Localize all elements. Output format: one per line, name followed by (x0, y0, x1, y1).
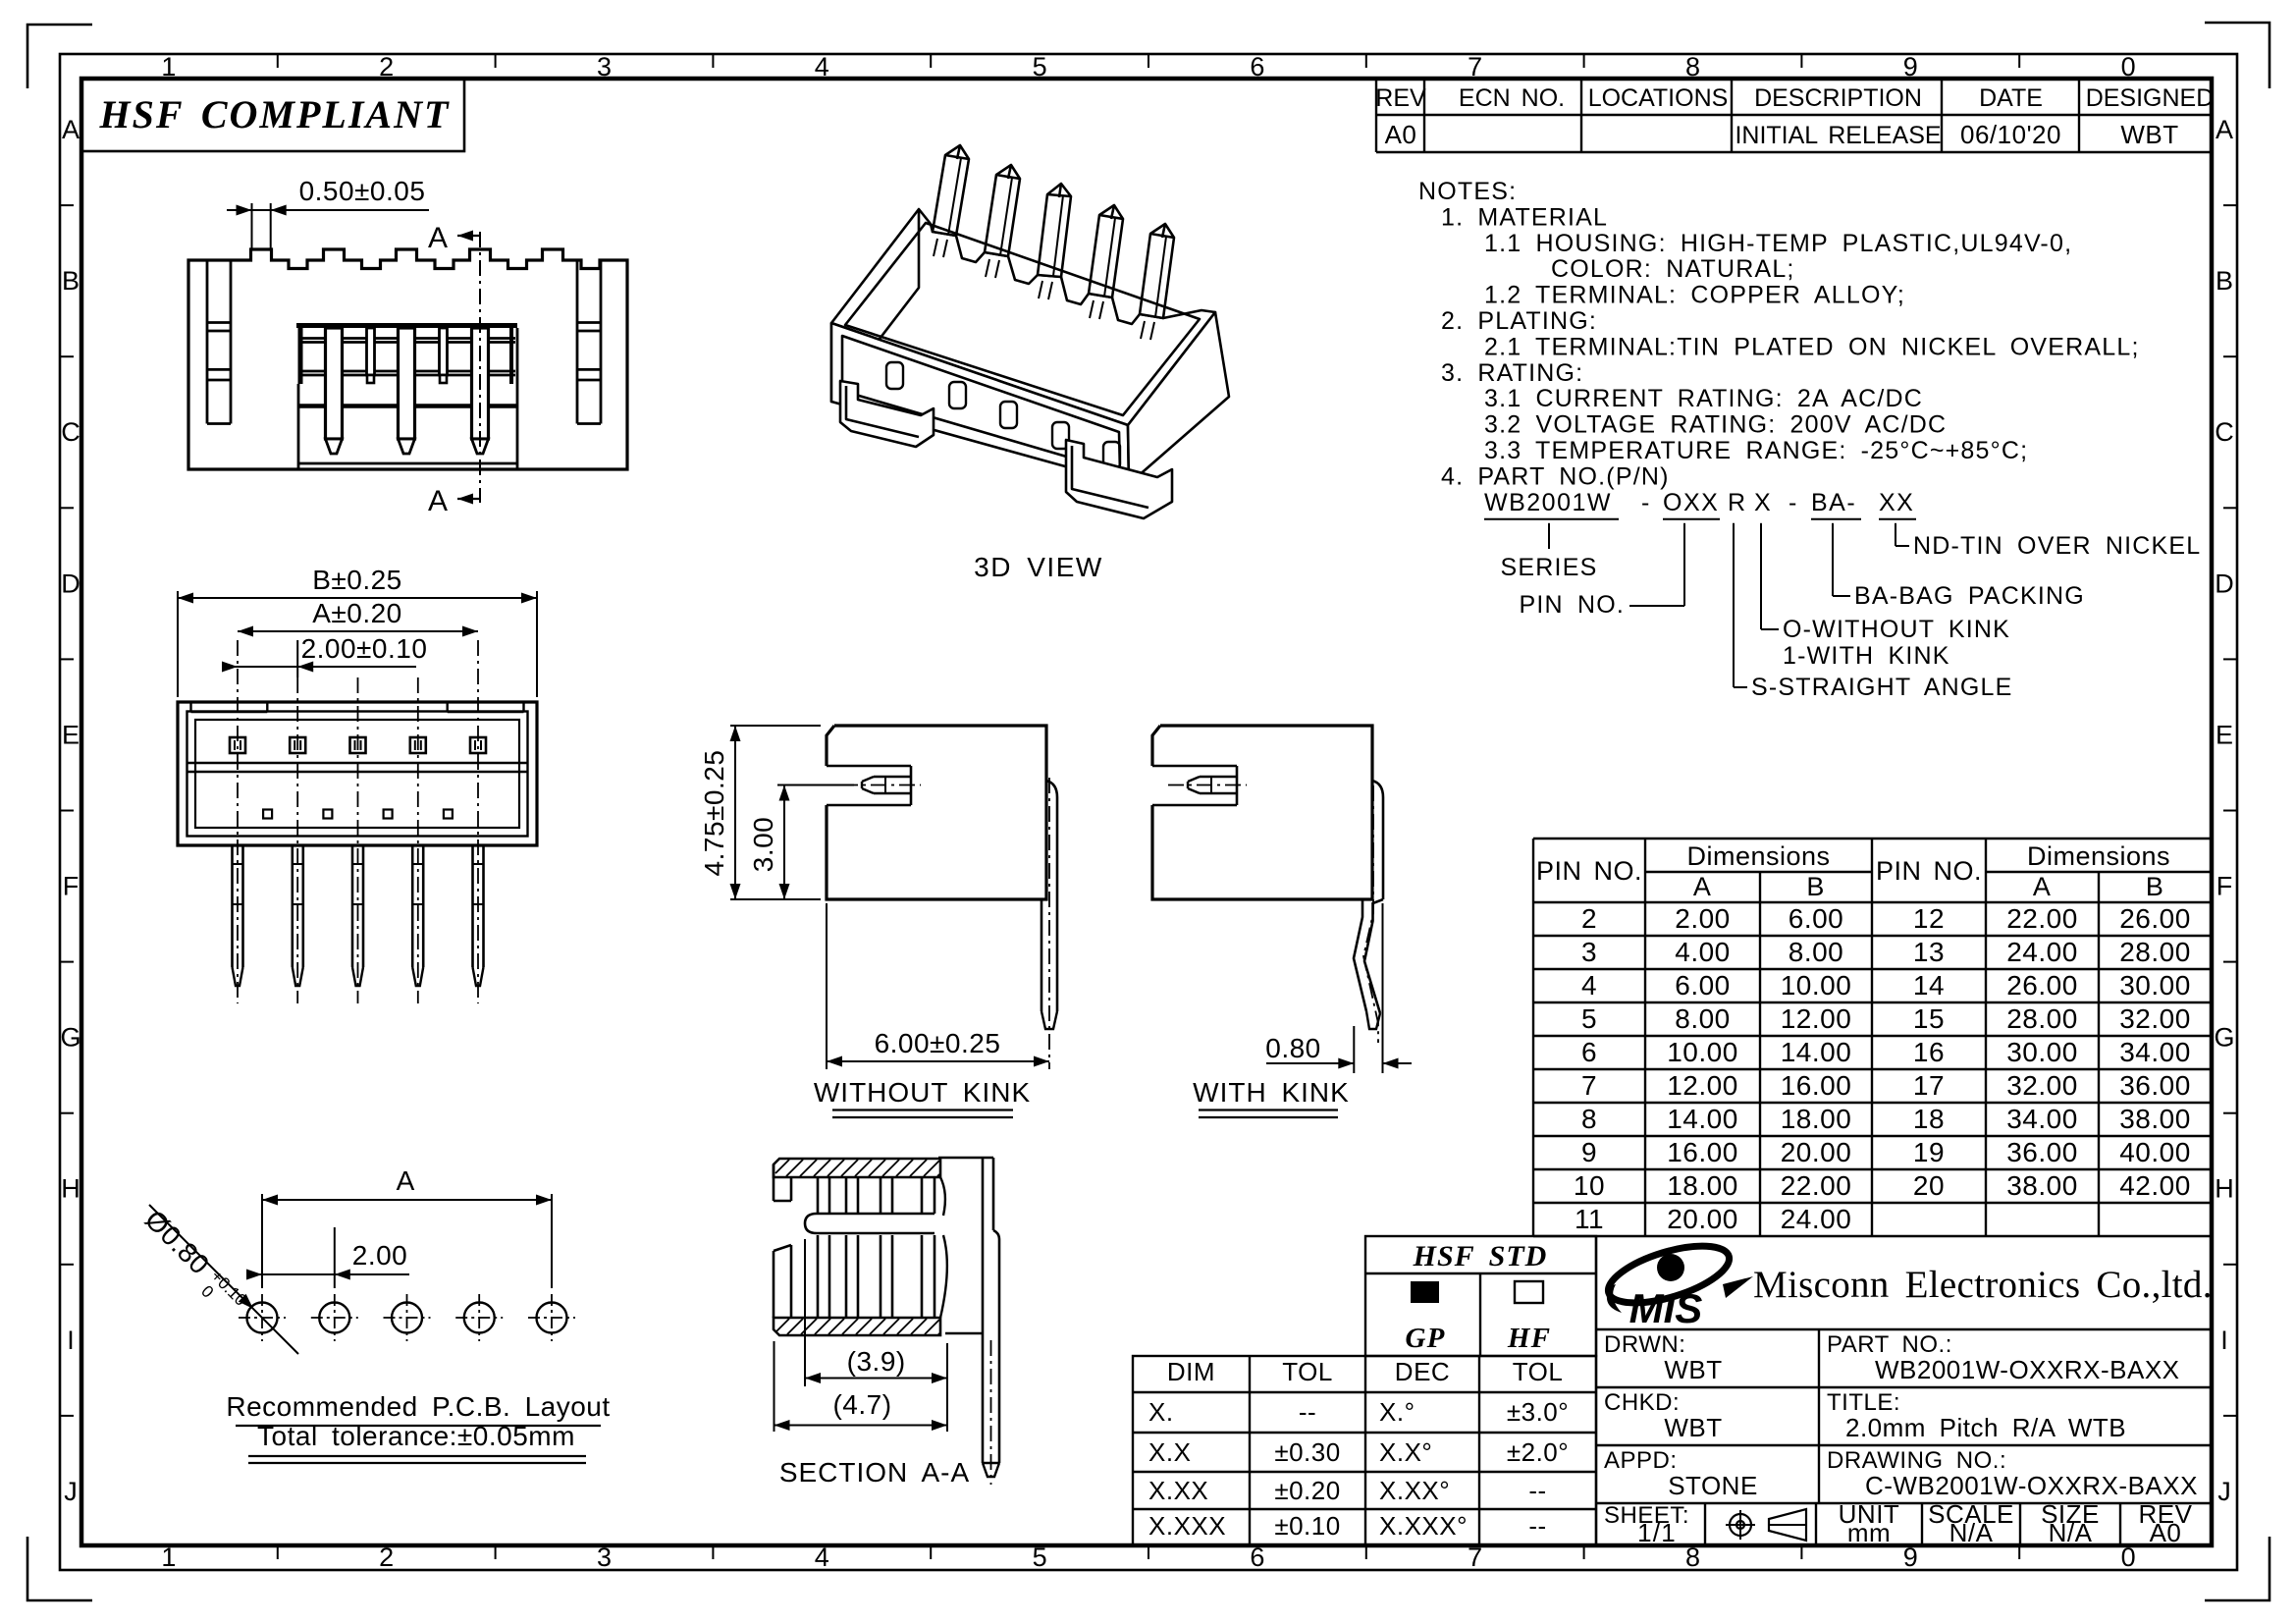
svg-text:DRWN:: DRWN: (1604, 1331, 1685, 1358)
svg-text:22.00: 22.00 (2006, 903, 2078, 934)
svg-text:36.00: 36.00 (2006, 1137, 2078, 1167)
svg-text:1: 1 (161, 52, 176, 81)
svg-text:22.00: 22.00 (1781, 1170, 1852, 1201)
svg-text:3. RATING:: 3. RATING: (1441, 359, 1583, 387)
svg-text:DATE: DATE (1979, 84, 2043, 112)
svg-text:WB2001W: WB2001W (1484, 489, 1612, 516)
svg-text:0: 0 (2121, 52, 2136, 81)
svg-text:2.1 TERMINAL:TIN PLATED ON: 2.1 TERMINAL:TIN PLATED ON NICKEL OVERAL… (1484, 333, 2140, 360)
svg-text:PIN NO.: PIN NO. (1876, 856, 1982, 886)
svg-text:ND-TIN OVER NICKEL: ND-TIN OVER NICKEL (1913, 532, 2201, 560)
svg-text:5: 5 (1033, 52, 1047, 81)
svg-text:18.00: 18.00 (1781, 1104, 1852, 1134)
svg-text:30.00: 30.00 (2006, 1037, 2078, 1067)
svg-text:2: 2 (1581, 903, 1597, 934)
svg-text:2.00: 2.00 (1675, 903, 1731, 934)
svg-text:--: -- (1299, 1397, 1316, 1427)
svg-text:06/10'20: 06/10'20 (1960, 120, 2061, 149)
svg-text:X.XX: X.XX (1148, 1476, 1208, 1505)
svg-text:XX: XX (1879, 489, 1914, 516)
svg-text:±3.0°: ±3.0° (1507, 1397, 1569, 1427)
svg-text:10: 10 (1574, 1170, 1605, 1201)
svg-text:12.00: 12.00 (1667, 1070, 1738, 1101)
svg-text:1.1 HOUSING: HIGH-TEMP PLAS: 1.1 HOUSING: HIGH-TEMP PLASTIC,UL94V-0, (1484, 230, 2072, 257)
svg-text:COLOR: NATURAL;: COLOR: NATURAL; (1551, 255, 1795, 283)
svg-text:REV: REV (1375, 84, 1426, 112)
svg-text:Misconn Electronics Co.,ltd.: Misconn Electronics Co.,ltd. (1753, 1264, 2213, 1306)
svg-text:DESIGNED: DESIGNED (2086, 84, 2215, 112)
svg-text:6: 6 (1250, 52, 1264, 81)
svg-text:32.00: 32.00 (2006, 1070, 2078, 1101)
svg-text:WBT: WBT (1664, 1355, 1722, 1384)
svg-text:12.00: 12.00 (1781, 1003, 1852, 1034)
svg-text:3.2 VOLTAGE RATING: 200V A: 3.2 VOLTAGE RATING: 200V AC/DC (1484, 411, 1947, 439)
svg-text:4.00: 4.00 (1675, 937, 1731, 967)
svg-text:4: 4 (815, 52, 829, 81)
svg-text:BA-BAG PACKING: BA-BAG PACKING (1854, 582, 2085, 610)
svg-text:WITHOUT KINK: WITHOUT KINK (814, 1077, 1031, 1108)
svg-text:-: - (1641, 489, 1651, 516)
svg-text:I: I (2220, 1326, 2228, 1355)
svg-text:X.XXX: X.XXX (1148, 1511, 1226, 1541)
svg-text:A: A (428, 222, 448, 254)
svg-text:26.00: 26.00 (2006, 970, 2078, 1001)
svg-text:12: 12 (1913, 903, 1945, 934)
svg-text:(4.7): (4.7) (832, 1389, 891, 1420)
svg-text:3: 3 (1581, 937, 1597, 967)
svg-text:36.00: 36.00 (2119, 1070, 2191, 1101)
svg-text:38.00: 38.00 (2006, 1170, 2078, 1201)
svg-text:PIN NO.: PIN NO. (1520, 591, 1625, 619)
svg-text:6.00±0.25: 6.00±0.25 (875, 1028, 1001, 1058)
svg-text:30.00: 30.00 (2119, 970, 2191, 1001)
svg-text:Recommended P.C.B. Layout: Recommended P.C.B. Layout (226, 1391, 610, 1422)
svg-text:38.00: 38.00 (2119, 1104, 2191, 1134)
svg-text:A: A (62, 115, 80, 144)
svg-text:16: 16 (1913, 1037, 1945, 1067)
svg-text:G: G (60, 1023, 80, 1053)
svg-text:8.00: 8.00 (1675, 1003, 1731, 1034)
svg-text:NOTES:: NOTES: (1418, 178, 1517, 205)
svg-text:C-WB2001W-OXXRX-BAXX: C-WB2001W-OXXRX-BAXX (1865, 1471, 2198, 1500)
svg-text:X: X (1754, 489, 1772, 516)
svg-text:42.00: 42.00 (2119, 1170, 2191, 1201)
svg-text:18.00: 18.00 (1667, 1170, 1738, 1201)
svg-text:28.00: 28.00 (2119, 937, 2191, 967)
svg-text:D: D (61, 568, 80, 598)
svg-text:A0: A0 (2150, 1518, 2182, 1547)
svg-text:A: A (1693, 872, 1712, 901)
svg-text:7: 7 (1581, 1070, 1597, 1101)
svg-text:J: J (2217, 1477, 2231, 1506)
svg-text:2.00±0.10: 2.00±0.10 (301, 633, 428, 664)
svg-text:WBT: WBT (1664, 1413, 1722, 1442)
svg-text:4: 4 (815, 1543, 829, 1572)
svg-text:B: B (2216, 266, 2233, 296)
svg-text:F: F (2216, 872, 2233, 901)
svg-text:MIS: MIS (1629, 1285, 1703, 1331)
svg-text:G: G (2214, 1023, 2234, 1053)
svg-text:B±0.25: B±0.25 (312, 565, 402, 595)
svg-text:9: 9 (1903, 1543, 1918, 1572)
svg-text:11: 11 (1575, 1204, 1604, 1234)
svg-text:-: - (1789, 489, 1798, 516)
svg-text:TOL: TOL (1282, 1357, 1333, 1386)
svg-text:26.00: 26.00 (2119, 903, 2191, 934)
svg-text:40.00: 40.00 (2119, 1137, 2191, 1167)
svg-text:X.: X. (1148, 1397, 1174, 1427)
svg-text:8.00: 8.00 (1789, 937, 1844, 967)
svg-text:13: 13 (1913, 937, 1945, 967)
svg-text:DIM: DIM (1167, 1357, 1215, 1386)
svg-text:±2.0°: ±2.0° (1507, 1437, 1569, 1467)
svg-text:CHKD:: CHKD: (1604, 1389, 1680, 1416)
svg-text:7: 7 (1468, 1543, 1482, 1572)
svg-text:S-STRAIGHT ANGLE: S-STRAIGHT ANGLE (1751, 674, 2012, 701)
svg-text:5: 5 (1581, 1003, 1597, 1034)
svg-text:3.00: 3.00 (748, 817, 778, 873)
svg-text:32.00: 32.00 (2119, 1003, 2191, 1034)
svg-text:6: 6 (1250, 1543, 1264, 1572)
svg-text:PART NO.:: PART NO.: (1827, 1331, 1952, 1358)
svg-text:E: E (2216, 720, 2233, 749)
svg-text:14.00: 14.00 (1667, 1104, 1738, 1134)
svg-text:X.X°: X.X° (1379, 1437, 1432, 1467)
svg-text:7: 7 (1468, 52, 1482, 81)
svg-text:3.3 TEMPERATURE RANGE: -25°: 3.3 TEMPERATURE RANGE: -25°C~+85°C; (1484, 437, 2028, 464)
svg-text:O-WITHOUT KINK: O-WITHOUT KINK (1783, 616, 2010, 643)
svg-text:1.2 TERMINAL: COPPER ALLOY;: 1.2 TERMINAL: COPPER ALLOY; (1484, 282, 1905, 309)
svg-text:WB2001W-OXXRX-BAXX: WB2001W-OXXRX-BAXX (1875, 1355, 2180, 1384)
svg-text:8: 8 (1685, 52, 1700, 81)
svg-text:X.X: X.X (1148, 1437, 1191, 1467)
svg-text:I: I (67, 1326, 75, 1355)
svg-text:34.00: 34.00 (2006, 1104, 2078, 1134)
svg-text:TITLE:: TITLE: (1827, 1389, 1900, 1416)
svg-text:X.°: X.° (1379, 1397, 1415, 1427)
svg-text:HF: HF (1507, 1323, 1551, 1354)
svg-text:--: -- (1528, 1511, 1546, 1541)
svg-text:B: B (2146, 872, 2164, 901)
svg-text:17: 17 (1913, 1070, 1945, 1101)
svg-text:5: 5 (1033, 1543, 1047, 1572)
svg-text:R: R (1728, 489, 1746, 516)
svg-text:INITIAL RELEASE: INITIAL RELEASE (1735, 122, 1941, 149)
svg-text:A±0.20: A±0.20 (312, 598, 402, 628)
svg-text:1. MATERIAL: 1. MATERIAL (1441, 203, 1608, 231)
svg-text:±0.10: ±0.10 (1274, 1511, 1340, 1541)
svg-text:9: 9 (1903, 52, 1918, 81)
svg-text:--: -- (1528, 1476, 1546, 1505)
svg-text:6.00: 6.00 (1789, 903, 1844, 934)
svg-text:HSF COMPLIANT: HSF COMPLIANT (99, 92, 451, 136)
svg-text:N/A: N/A (2049, 1518, 2093, 1547)
svg-text:BA-: BA- (1811, 489, 1856, 516)
svg-text:A: A (428, 485, 448, 517)
svg-text:2: 2 (379, 1543, 394, 1572)
svg-text:14: 14 (1913, 970, 1945, 1001)
svg-text:15: 15 (1913, 1003, 1945, 1034)
svg-text:PIN NO.: PIN NO. (1536, 856, 1642, 886)
svg-text:2: 2 (379, 52, 394, 81)
svg-text:N/A: N/A (1949, 1518, 1994, 1547)
svg-text:GP: GP (1405, 1323, 1445, 1354)
svg-text:(3.9): (3.9) (847, 1346, 906, 1377)
svg-text:SECTION A-A: SECTION A-A (779, 1457, 970, 1488)
svg-text:2. PLATING:: 2. PLATING: (1441, 307, 1597, 335)
svg-text:28.00: 28.00 (2006, 1003, 2078, 1034)
svg-text:20.00: 20.00 (1667, 1204, 1738, 1234)
svg-text:B: B (62, 266, 80, 296)
svg-text:SERIES: SERIES (1501, 554, 1598, 581)
svg-text:A: A (2033, 872, 2052, 901)
svg-text:1: 1 (161, 1543, 176, 1572)
svg-text:H: H (61, 1174, 80, 1204)
svg-text:4.75±0.25: 4.75±0.25 (699, 750, 729, 877)
svg-text:0.50±0.05: 0.50±0.05 (299, 176, 426, 206)
svg-text:3D VIEW: 3D VIEW (974, 552, 1103, 582)
svg-text:8: 8 (1685, 1543, 1700, 1572)
svg-text:WITH KINK: WITH KINK (1193, 1077, 1350, 1108)
svg-text:mm: mm (1847, 1518, 1891, 1547)
svg-text:24.00: 24.00 (2006, 937, 2078, 967)
svg-text:6.00: 6.00 (1675, 970, 1731, 1001)
svg-text:DESCRIPTION: DESCRIPTION (1754, 84, 1922, 112)
svg-text:F: F (63, 872, 80, 901)
svg-text:3.1 CURRENT RATING: 2A AC/: 3.1 CURRENT RATING: 2A AC/DC (1484, 385, 1923, 412)
svg-text:A: A (397, 1165, 415, 1196)
svg-text:H: H (2215, 1174, 2234, 1204)
svg-text:DEC: DEC (1395, 1357, 1450, 1386)
svg-text:C: C (2215, 417, 2234, 447)
svg-text:18: 18 (1913, 1104, 1945, 1134)
svg-text:1-WITH KINK: 1-WITH KINK (1783, 642, 1950, 670)
svg-text:DRAWING NO.:: DRAWING NO.: (1827, 1447, 2006, 1474)
svg-text:WBT: WBT (2120, 120, 2178, 149)
svg-text:2.0mm Pitch R/A WTB: 2.0mm Pitch R/A WTB (1845, 1413, 2126, 1442)
svg-text:J: J (64, 1477, 78, 1506)
svg-text:Dimensions: Dimensions (1686, 841, 1830, 871)
svg-text:TOL: TOL (1513, 1357, 1564, 1386)
svg-text:16.00: 16.00 (1667, 1137, 1738, 1167)
svg-text:4. PART NO.(P/N): 4. PART NO.(P/N) (1441, 462, 1670, 490)
svg-text:0.80: 0.80 (1265, 1033, 1321, 1063)
svg-text:24.00: 24.00 (1781, 1204, 1852, 1234)
svg-text:6: 6 (1581, 1037, 1597, 1067)
svg-text:B: B (1806, 872, 1825, 901)
svg-text:4: 4 (1581, 970, 1597, 1001)
svg-text:10.00: 10.00 (1781, 970, 1852, 1001)
svg-text:STONE: STONE (1668, 1471, 1758, 1500)
svg-text:3: 3 (597, 52, 612, 81)
svg-text:E: E (62, 720, 80, 749)
svg-text:16.00: 16.00 (1781, 1070, 1852, 1101)
svg-text:8: 8 (1581, 1104, 1597, 1134)
svg-text:A0: A0 (1385, 120, 1417, 149)
svg-text:20.00: 20.00 (1781, 1137, 1852, 1167)
svg-text:APPD:: APPD: (1604, 1447, 1678, 1474)
svg-text:A: A (2216, 115, 2233, 144)
svg-text:3: 3 (597, 1543, 612, 1572)
svg-text:19: 19 (1913, 1137, 1945, 1167)
svg-text:2.00: 2.00 (352, 1240, 408, 1271)
svg-text:10.00: 10.00 (1667, 1037, 1738, 1067)
svg-text:34.00: 34.00 (2119, 1037, 2191, 1067)
svg-text:HSF STD: HSF STD (1413, 1240, 1548, 1272)
svg-text:±0.20: ±0.20 (1274, 1476, 1340, 1505)
svg-text:X.XX°: X.XX° (1379, 1476, 1450, 1505)
svg-text:LOCATIONS: LOCATIONS (1588, 84, 1729, 112)
svg-text:±0.30: ±0.30 (1274, 1437, 1340, 1467)
svg-text:0: 0 (2121, 1543, 2136, 1572)
svg-text:Dimensions: Dimensions (2027, 841, 2170, 871)
svg-text:1/1: 1/1 (1637, 1518, 1677, 1547)
svg-text:D: D (2215, 568, 2234, 598)
svg-text:20: 20 (1913, 1170, 1945, 1201)
svg-text:9: 9 (1581, 1137, 1597, 1167)
svg-text:ECN NO.: ECN NO. (1459, 84, 1565, 112)
svg-text:X.XXX°: X.XXX° (1379, 1511, 1468, 1541)
svg-text:OXX: OXX (1663, 489, 1719, 516)
svg-text:14.00: 14.00 (1781, 1037, 1852, 1067)
svg-text:C: C (61, 417, 80, 447)
svg-text:Total tolerance:±0.05mm: Total tolerance:±0.05mm (257, 1421, 575, 1451)
